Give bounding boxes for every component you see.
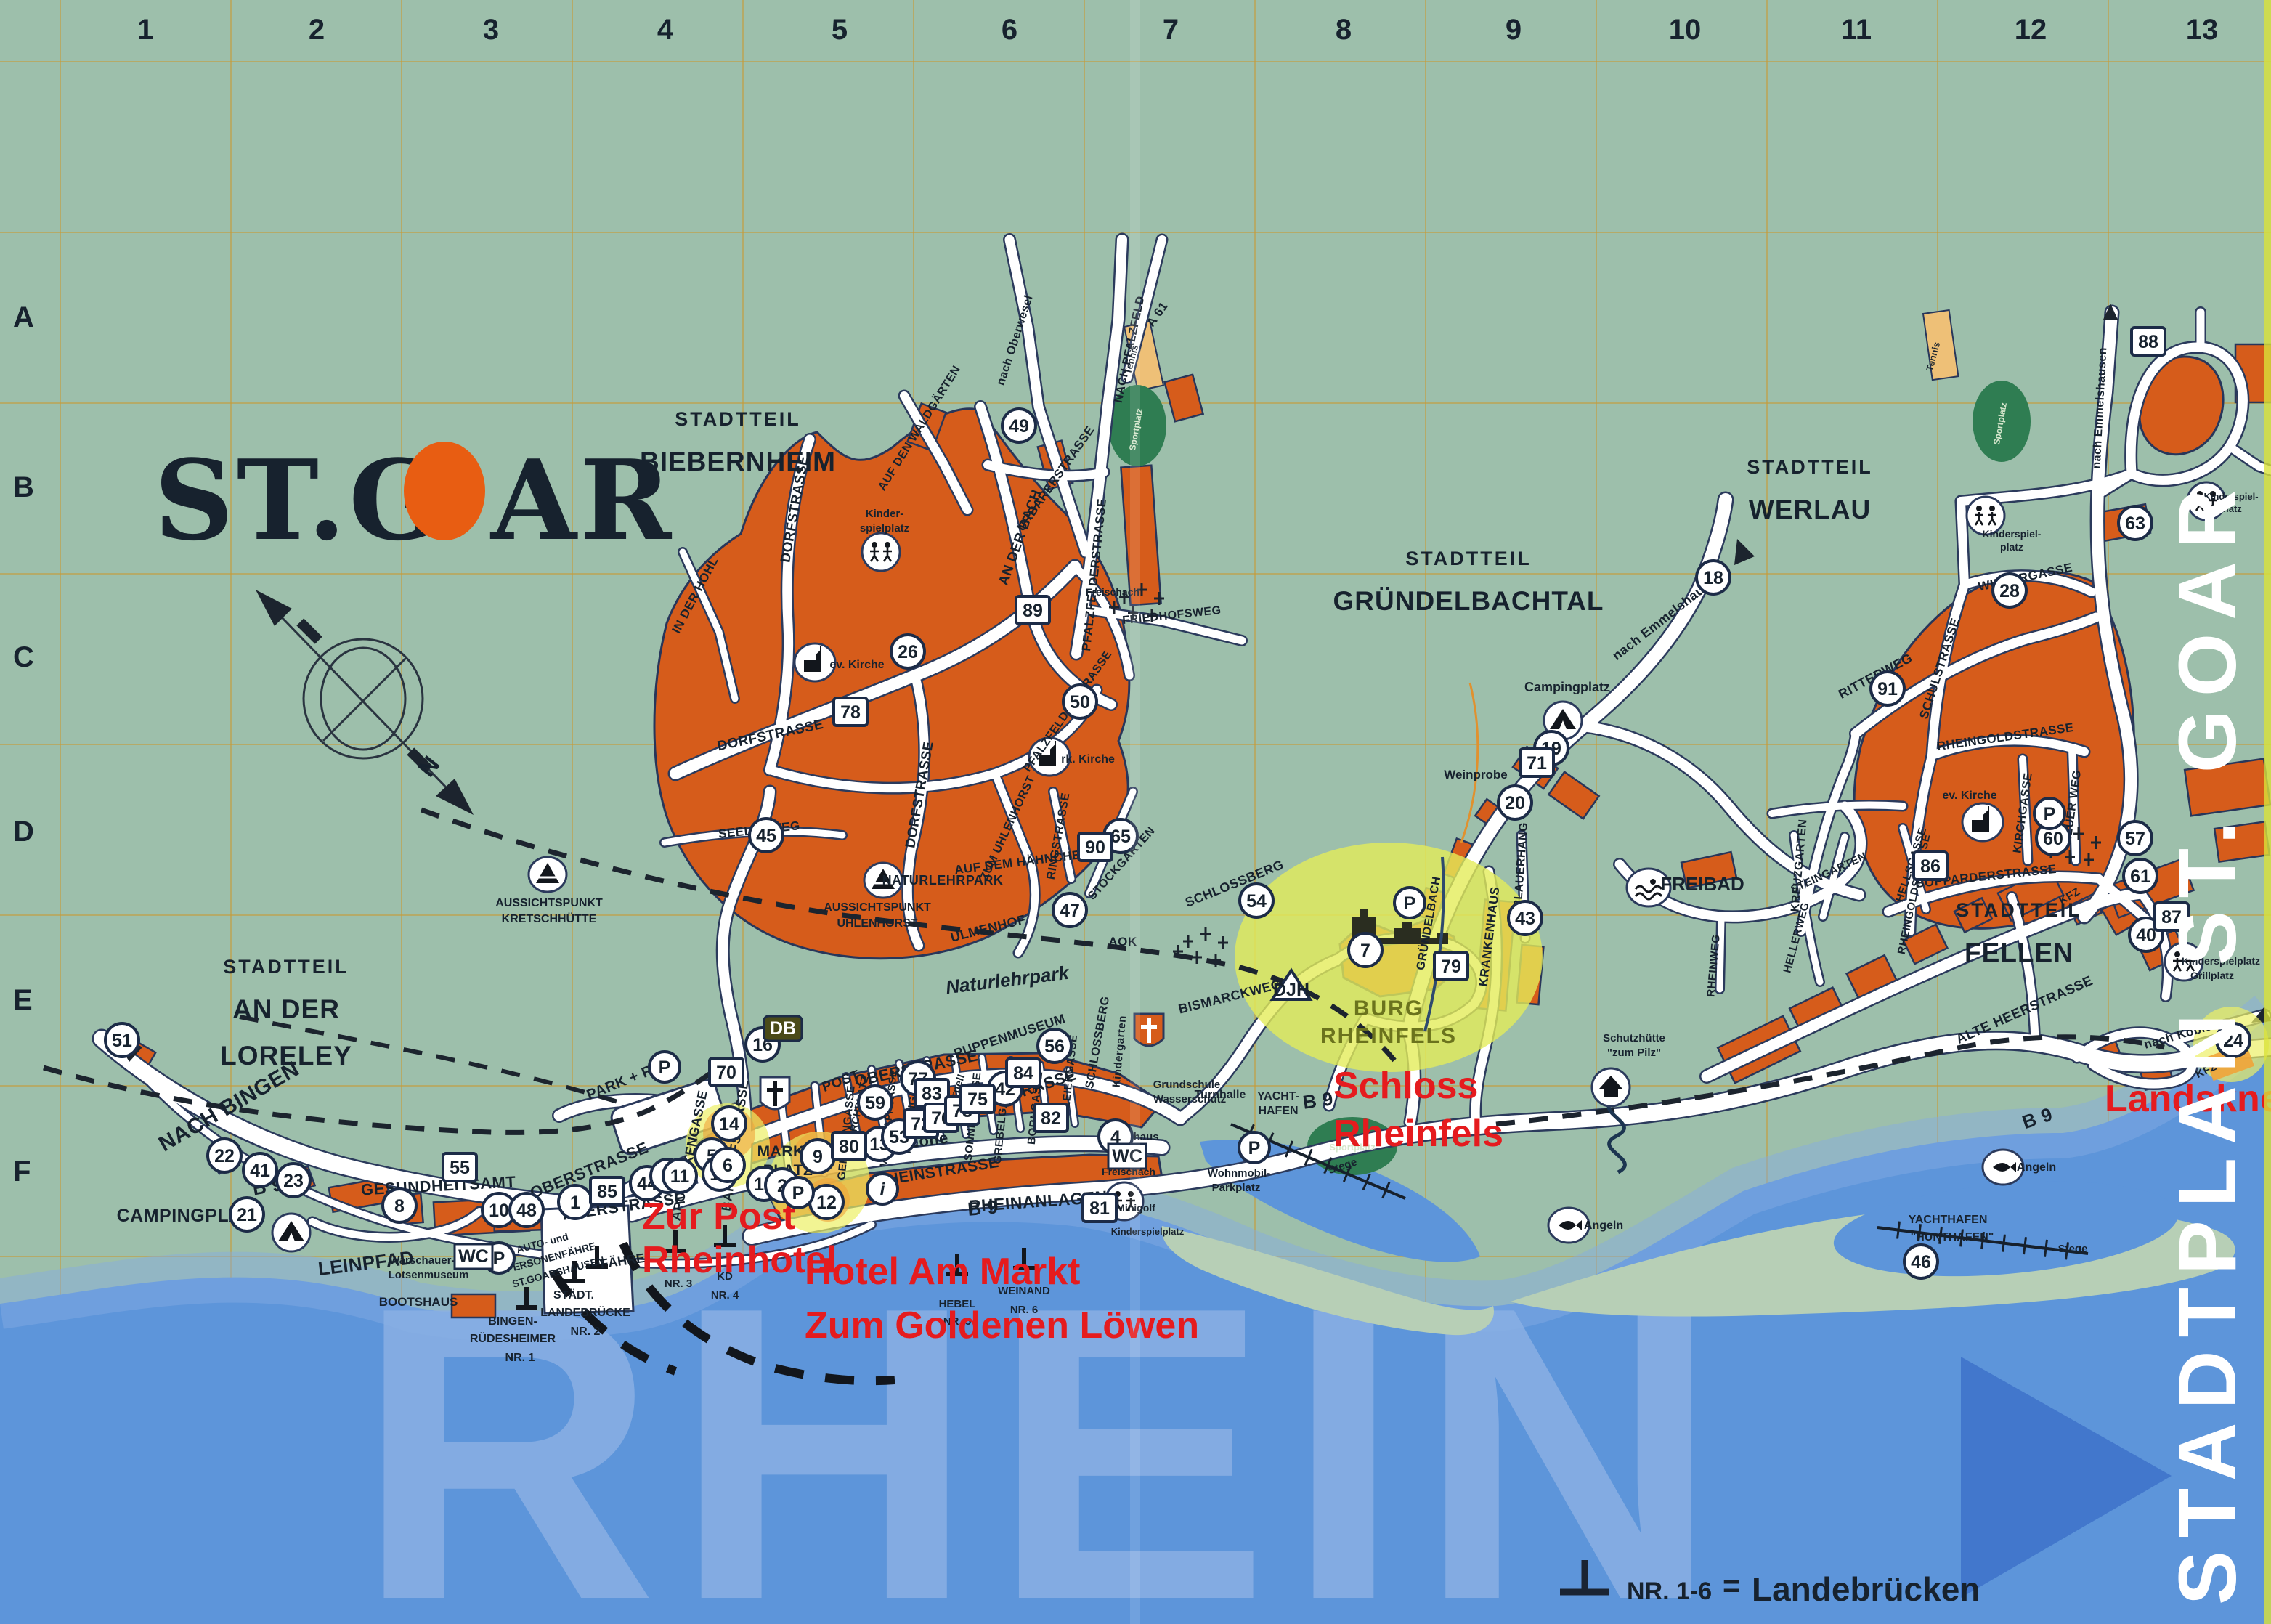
marker-number: 23 — [283, 1171, 304, 1191]
parking-letter: P — [659, 1057, 671, 1078]
figure-head — [872, 542, 877, 548]
district-kicker: STADTTEIL — [1405, 548, 1531, 569]
edge-title: STADTPLAN ST. GOAR — [2162, 476, 2253, 1605]
marker-number: 59 — [865, 1093, 885, 1113]
numbered-circle-marker: 9 — [801, 1140, 834, 1173]
numbered-box-marker: 89 — [1016, 596, 1049, 624]
legend-equals: = — [1723, 1569, 1741, 1603]
marker-number: 90 — [1085, 837, 1105, 858]
numbered-circle-marker: 20 — [1498, 786, 1532, 819]
map-title-right: AR — [489, 435, 674, 565]
marker-number: 14 — [719, 1114, 739, 1134]
numbered-box-marker: 75 — [961, 1085, 994, 1113]
road — [1961, 501, 1965, 585]
numbered-box-marker: 80 — [832, 1132, 866, 1160]
numbered-box-marker: 70 — [710, 1058, 743, 1086]
map-canvas: 12345678910111213ABCDEFG RHEIN NACH BING… — [0, 0, 2271, 1624]
djh-letters: DJH — [1273, 980, 1309, 1000]
poi-label: BINGEN- — [488, 1315, 537, 1328]
numbered-box-marker: 90 — [1078, 833, 1112, 861]
numbered-circle-marker: 43 — [1508, 901, 1542, 935]
poi-label: "zum Pilz" — [1607, 1047, 1661, 1059]
numbered-circle-marker: 1 — [558, 1185, 592, 1219]
poi-label: Weinprobe — [1444, 768, 1508, 781]
poi-label: YACHTHAFEN — [1909, 1214, 1988, 1226]
grid-col-label: 2 — [309, 14, 325, 46]
marker-number: 79 — [1441, 957, 1461, 977]
church-icon — [1962, 803, 2003, 841]
numbered-box-marker: 88 — [2132, 328, 2165, 355]
marker-number: 45 — [756, 826, 776, 846]
marker-number: 26 — [898, 642, 918, 662]
marker-number: 83 — [922, 1084, 942, 1104]
icon-disc — [862, 533, 900, 571]
numbered-circle-marker: 26 — [891, 635, 925, 668]
district-kicker: STADTTEIL — [223, 956, 349, 978]
poi-label: ev. Kirche — [1942, 789, 1996, 802]
marker-number: 20 — [1505, 793, 1525, 813]
marker-number: 61 — [2130, 866, 2150, 887]
parking-letter: P — [2044, 804, 2056, 824]
numbered-circle-marker: 21 — [230, 1198, 264, 1231]
red-annotation: Rheinfels — [1333, 1113, 1503, 1155]
kinderspielplatz-icon — [862, 533, 900, 571]
poi-label: Lotsenmuseum — [389, 1269, 469, 1281]
burg-label: RHEINFELS — [1320, 1024, 1457, 1048]
numbered-circle-marker: 14 — [712, 1107, 746, 1140]
grid-col-label: 9 — [1506, 14, 1522, 46]
marker-number: 1 — [570, 1193, 580, 1213]
wc-marker: WC — [1108, 1144, 1146, 1169]
numbered-circle-marker: 51 — [105, 1023, 139, 1057]
marker-number: 7 — [1360, 941, 1370, 961]
marker-number: 71 — [1527, 753, 1547, 774]
numbered-circle-marker: 49 — [1002, 409, 1036, 442]
grid-col-label: 4 — [657, 14, 674, 46]
grid-row-label: B — [13, 471, 34, 503]
marker-number: 51 — [112, 1031, 132, 1051]
numbered-circle-marker: 50 — [1063, 685, 1097, 718]
marker-number: 6 — [723, 1156, 733, 1176]
grid-col-label: 12 — [2015, 14, 2047, 46]
marker-number: 85 — [597, 1182, 617, 1202]
numbered-box-marker: 84 — [1007, 1059, 1040, 1087]
marker-number: 22 — [214, 1146, 235, 1166]
numbered-circle-marker: 61 — [2124, 859, 2157, 893]
poi-label: rk. Kirche — [1061, 753, 1115, 766]
info-letter: i — [880, 1180, 886, 1200]
grid-col-label: 8 — [1336, 14, 1352, 46]
marker-number: 11 — [670, 1166, 690, 1187]
map-title-left: ST.G — [154, 435, 446, 565]
legend-label: Landebrücken — [1752, 1570, 1980, 1608]
info-marker: i — [867, 1174, 898, 1204]
poi-label: Kinderspielplatz — [1111, 1226, 1185, 1237]
figure-head — [885, 542, 890, 548]
poi-label: spielplatz — [860, 522, 909, 535]
marker-number: 80 — [839, 1137, 859, 1157]
schutzhuette-icon — [1592, 1068, 1630, 1106]
aussichtspunkt-icon — [529, 857, 566, 892]
district-kicker: STADTTEIL — [675, 408, 800, 430]
parking-letter: P — [493, 1249, 505, 1269]
parking-letter: P — [1248, 1138, 1261, 1158]
poi-label: Kinder- — [866, 508, 904, 520]
numbered-box-marker: 85 — [590, 1177, 624, 1205]
poi-label: Parkplatz — [1212, 1182, 1261, 1194]
marker-number: 8 — [394, 1196, 405, 1217]
street-label: B 9 — [1301, 1087, 1335, 1113]
swimmer-head — [1650, 879, 1656, 885]
poi-label: Campingplatz — [1524, 680, 1610, 694]
page-edge-strip — [2264, 0, 2271, 1624]
marker-number: 91 — [1877, 679, 1898, 699]
marker-number: 56 — [1044, 1036, 1065, 1057]
marker-number: 63 — [2125, 513, 2145, 534]
parking-marker: P — [649, 1052, 680, 1082]
marker-number: 9 — [813, 1147, 823, 1167]
parking-marker: P — [2034, 798, 2065, 829]
numbered-circle-marker: 56 — [1038, 1029, 1071, 1063]
marker-number: 43 — [1515, 909, 1535, 929]
burg-label: BURG — [1354, 996, 1423, 1020]
numbered-box-marker: 78 — [834, 698, 867, 726]
grid-col-label: 10 — [1669, 14, 1702, 46]
poi-label: Wohnmobil- — [1208, 1167, 1270, 1180]
district-name: WERLAU — [1749, 495, 1871, 524]
parking-marker: P — [783, 1177, 813, 1208]
numbered-box-marker: 79 — [1434, 952, 1468, 980]
numbered-circle-marker: 23 — [277, 1164, 310, 1197]
poi-label: NR. 4 — [711, 1289, 739, 1302]
numbered-circle-marker: 45 — [749, 819, 783, 852]
marker-number: 57 — [2125, 829, 2145, 849]
poi-label: LANDEBRÜCKE — [540, 1305, 630, 1319]
marker-number: 86 — [1920, 856, 1941, 877]
numbered-circle-marker: 57 — [2118, 821, 2152, 855]
marker-number: 41 — [250, 1161, 270, 1181]
marker-number: 46 — [1911, 1252, 1931, 1272]
marker-number: 60 — [2043, 829, 2063, 849]
marker-number: 55 — [450, 1158, 470, 1178]
poi-label: AUSSICHTSPUNKT — [495, 897, 603, 909]
parking-marker: P — [1394, 888, 1425, 918]
marker-number: 88 — [2138, 332, 2158, 352]
poi-label: YACHT- — [1257, 1090, 1299, 1103]
poi-label: AUSSICHTSPUNKT — [824, 901, 931, 914]
wc-marker: WC — [455, 1244, 492, 1269]
numbered-circle-marker: 47 — [1053, 893, 1086, 927]
church-shield-icon — [760, 1077, 789, 1109]
map-fold-line — [1130, 0, 1140, 1624]
map-title: ST.G AR — [154, 435, 674, 565]
numbered-circle-marker: 46 — [1904, 1245, 1938, 1278]
marker-number: 48 — [516, 1201, 537, 1221]
red-annotation: Schloss — [1333, 1065, 1478, 1107]
numbered-circle-marker: 41 — [243, 1153, 277, 1187]
figure-head — [1976, 506, 1982, 511]
numbered-circle-marker: 54 — [1240, 884, 1273, 917]
poi-label: Turnhalle — [1195, 1089, 1246, 1101]
legend-prefix: NR. 1-6 — [1627, 1578, 1712, 1605]
marker-number: 47 — [1060, 901, 1080, 921]
parking-letter: P — [1404, 893, 1416, 914]
grid-col-label: 13 — [2186, 14, 2219, 46]
red-annotation: Hotel Am Markt — [805, 1251, 1080, 1293]
marker-number: 28 — [1999, 581, 2020, 601]
marker-number: 50 — [1070, 692, 1090, 712]
poi-label: KRETSCHHÜTTE — [502, 912, 597, 925]
angeln-fish-icon — [1548, 1208, 1589, 1243]
grid-row-label: A — [13, 301, 34, 333]
poi-label: NR. 1 — [505, 1352, 535, 1364]
district-kicker: STADTTEIL — [1956, 899, 2081, 921]
marker-number: 70 — [716, 1063, 736, 1083]
numbered-box-marker: 82 — [1034, 1104, 1068, 1132]
district-name: GRÜNDELBACHTAL — [1333, 586, 1604, 616]
numbered-circle-marker: 48 — [510, 1193, 543, 1227]
numbered-circle-marker: 91 — [1871, 672, 1904, 705]
numbered-box-marker: 81 — [1083, 1194, 1116, 1222]
marker-number: 84 — [1013, 1063, 1033, 1084]
grid-row-label: E — [13, 984, 33, 1016]
numbered-circle-marker: 63 — [2118, 506, 2152, 540]
building-block — [452, 1294, 495, 1318]
marker-number: 49 — [1009, 416, 1029, 437]
numbered-box-marker: 71 — [1520, 749, 1553, 776]
wc-label: WC — [458, 1246, 489, 1267]
grid-row-label: D — [13, 816, 34, 848]
district-name: LORELEY — [220, 1041, 352, 1071]
db-label: DB — [770, 1018, 796, 1039]
numbered-circle-marker: 8 — [383, 1189, 416, 1222]
poi-label: RÜDESHEIMER — [470, 1331, 556, 1345]
poi-label: Angeln — [1584, 1219, 1623, 1232]
red-annotation: Zur Post — [642, 1195, 795, 1238]
poi-label: FREIBAD — [1660, 873, 1744, 895]
numbered-circle-marker: 59 — [858, 1086, 892, 1119]
poi-label: Angeln — [2017, 1161, 2056, 1174]
burg-marker: 7 — [1349, 933, 1382, 967]
map-title-dot — [404, 442, 485, 540]
stadtplan-st-goar: 12345678910111213ABCDEFG RHEIN NACH BING… — [0, 0, 2271, 1624]
parking-letter: P — [792, 1183, 805, 1203]
poi-label: STÄDT. — [553, 1288, 594, 1302]
numbered-circle-marker: 28 — [1993, 574, 2026, 607]
numbered-box-marker: 55 — [443, 1153, 476, 1181]
marker-number: 82 — [1041, 1108, 1061, 1129]
db-station-marker: DB — [764, 1016, 802, 1041]
poi-label: Stege — [2058, 1243, 2088, 1255]
grid-col-label: 5 — [832, 14, 848, 46]
numbered-circle-marker: 12 — [810, 1185, 843, 1219]
poi-label: BOOTSHAUS — [379, 1295, 458, 1309]
parking-marker: P — [1239, 1132, 1269, 1163]
marker-number: 40 — [2136, 925, 2156, 946]
marker-number: 75 — [967, 1089, 988, 1110]
numbered-circle-marker: 6 — [711, 1148, 744, 1182]
numbered-box-marker: 86 — [1914, 852, 1947, 880]
marker-number: 18 — [1703, 568, 1723, 588]
marker-number: 12 — [816, 1193, 837, 1213]
poi-label: HAFEN — [1258, 1105, 1298, 1117]
grid-col-label: 7 — [1163, 14, 1179, 46]
grid-col-label: 6 — [1002, 14, 1017, 46]
numbered-circle-marker: 11 — [663, 1159, 696, 1193]
marker-number: 21 — [237, 1205, 257, 1225]
district-name: AN DER — [232, 994, 340, 1024]
figure-head — [1989, 506, 1995, 511]
marker-number: 10 — [489, 1201, 509, 1221]
poi-label: "HUNTHAFEN" — [1911, 1231, 1994, 1243]
numbered-circle-marker: 18 — [1697, 561, 1730, 594]
marker-number: 65 — [1110, 827, 1131, 847]
poi-label: Schutzhütte — [1603, 1032, 1665, 1044]
marker-number: 78 — [840, 702, 861, 723]
grid-col-label: 11 — [1841, 14, 1872, 46]
poi-label: platz — [2000, 541, 2023, 553]
poi-label: Kinderspiel- — [1983, 528, 2042, 540]
grid-row-label: F — [13, 1156, 31, 1187]
marker-number: 81 — [1089, 1198, 1110, 1219]
street-label: NATURLEHRPARK — [882, 873, 1004, 888]
grid-row-label: C — [13, 641, 34, 673]
poi-label: NR. 2 — [571, 1325, 601, 1338]
grid-col-label: 1 — [137, 14, 153, 46]
numbered-circle-marker: 22 — [208, 1139, 241, 1172]
marker-number: 89 — [1023, 601, 1043, 621]
poi-label: ev. Kirche — [829, 659, 884, 671]
campingplatz-tent-icon — [272, 1214, 310, 1251]
district-kicker: STADTTEIL — [1747, 456, 1872, 478]
grid-col-label: 3 — [483, 14, 499, 46]
district-name: FELLEN — [1965, 938, 2073, 967]
poi-label: UHLENHORST — [837, 917, 917, 930]
marker-number: 54 — [1246, 891, 1267, 912]
